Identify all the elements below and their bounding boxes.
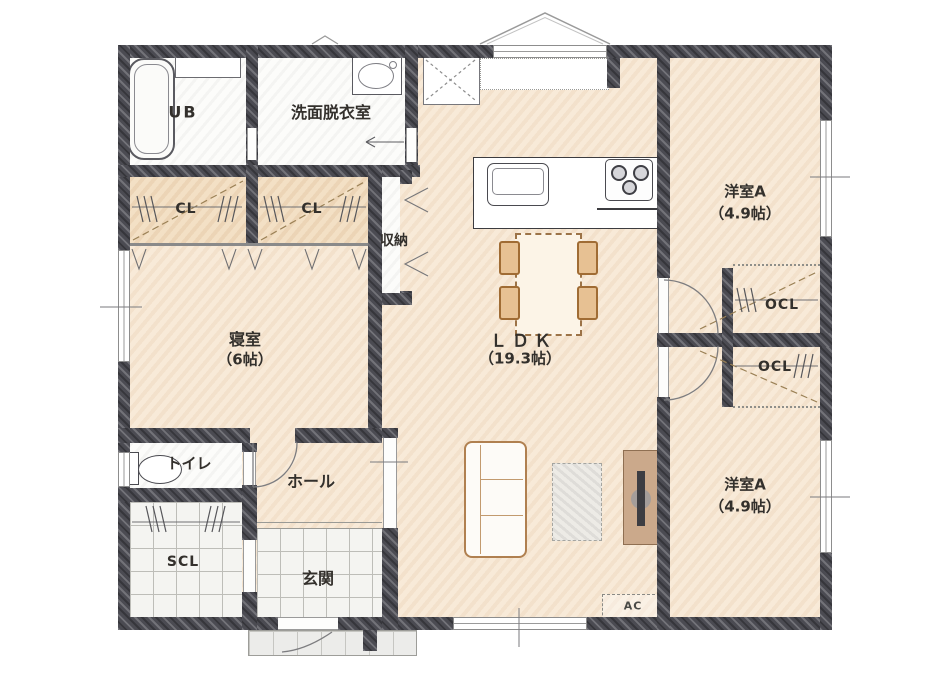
kitchen-sink-icon: [487, 163, 549, 206]
room-label-storage: 収納: [380, 230, 408, 250]
bath-counter: [175, 57, 241, 78]
wall: [246, 165, 258, 243]
wall: [242, 443, 257, 452]
wall: [820, 553, 832, 630]
wall: [820, 45, 832, 120]
wall: [382, 293, 412, 305]
room-label-bedroom: 寝室: [229, 326, 261, 350]
chair: [577, 286, 598, 320]
washbasin-icon: [352, 57, 402, 95]
closet-front-line: [130, 243, 368, 246]
sofa: [464, 441, 527, 558]
wall: [118, 487, 130, 630]
rug: [552, 463, 602, 541]
kitchen-niche: [480, 58, 609, 90]
wall: [242, 592, 257, 630]
window: [820, 120, 832, 237]
roof-mark-icon: [312, 36, 338, 44]
ocl-top-boundary: [733, 264, 820, 268]
chair: [499, 241, 520, 275]
window: [453, 617, 587, 630]
room-label-closet-b: CL: [301, 201, 322, 217]
chair: [577, 241, 598, 275]
door-opening: [406, 128, 417, 162]
wall: [295, 428, 382, 443]
window: [118, 452, 130, 487]
ac-label: AC: [624, 600, 643, 613]
wall: [368, 165, 382, 443]
door-opening: [658, 347, 669, 397]
wall: [587, 617, 832, 630]
window: [820, 440, 832, 553]
window: [493, 45, 607, 58]
dining-table: [515, 233, 582, 336]
entrance-porch: [248, 630, 417, 656]
wall: [607, 45, 832, 58]
wall: [118, 428, 250, 443]
room-label-western-top: 洋室A: [724, 181, 766, 202]
wall: [657, 45, 670, 278]
wall: [382, 528, 398, 630]
room-size-western-bottom: （4.9帖）: [709, 496, 781, 517]
wall: [657, 397, 670, 630]
wall: [118, 45, 130, 250]
entrance-door-opening: [278, 617, 338, 630]
room-label-entrance: 玄関: [302, 565, 334, 589]
roof-mark-icon: [480, 13, 610, 44]
room-label-toilet: トイレ: [166, 453, 211, 474]
room-label-ocl-bottom: OCL: [758, 359, 792, 375]
room-label-ub: UB: [168, 103, 197, 122]
room-label-shoe-closet: SCL: [167, 554, 199, 570]
fridge-space: [423, 57, 480, 105]
door-opening: [658, 278, 669, 333]
door-opening: [247, 128, 257, 160]
hall-ldk-opening: [383, 438, 397, 528]
room-label-closet-a: CL: [175, 201, 196, 217]
ocl-bottom-boundary: [733, 406, 820, 410]
room-label-washroom: 洗面脱衣室: [291, 99, 371, 123]
porch-pillar: [363, 630, 377, 651]
wall: [657, 333, 832, 347]
wall: [118, 488, 257, 502]
scl-opening: [243, 540, 256, 592]
room-label-ocl-top: OCL: [765, 297, 799, 313]
toilet-door-opening: [243, 452, 256, 485]
wall: [607, 58, 620, 88]
entrance-step-line: [257, 522, 382, 529]
floor-plan: UB 洗面脱衣室 CL CL 収納 寝室 （6帖） トイレ ホール SCL 玄関…: [0, 0, 933, 700]
room-size-bedroom: （6帖）: [217, 349, 272, 370]
window: [118, 250, 130, 362]
tv-board: [623, 450, 658, 545]
room-label-western-bottom: 洋室A: [724, 474, 766, 495]
room-label-hall: ホール: [287, 468, 335, 492]
wall: [400, 170, 412, 184]
kitchen-counter: [473, 157, 659, 229]
roof-mark-icon: [487, 18, 603, 45]
room-size-ldk: （19.3帖）: [479, 348, 561, 369]
stove-icon: [605, 159, 653, 201]
wall: [242, 485, 257, 540]
room-size-western-top: （4.9帖）: [709, 203, 781, 224]
wall: [382, 428, 398, 438]
wall: [722, 268, 733, 407]
wall: [118, 45, 493, 58]
chair: [499, 286, 520, 320]
